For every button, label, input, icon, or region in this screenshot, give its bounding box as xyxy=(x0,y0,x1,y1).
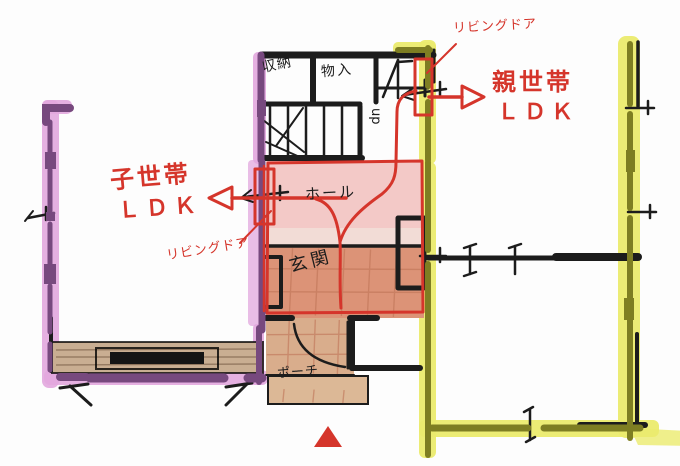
window-symbol-deck-right xyxy=(226,383,252,405)
parent-unit-ldk-label: ＬＤＫ xyxy=(497,102,578,124)
deck-black-bar xyxy=(110,352,204,364)
stairs-up-label: up xyxy=(369,108,382,125)
parent-unit-label: 親世帯 xyxy=(492,70,573,94)
closet-label: 物入 xyxy=(320,63,353,80)
child-unit-label: 子世帯 xyxy=(109,162,192,193)
floor-plan-sketch: 収納 物入 up ホール 玄関 ポーチ リビングドア 親世帯 ＬＤＫ 子世帯 Ｌ… xyxy=(0,0,680,466)
staircase xyxy=(258,106,362,158)
deck-board xyxy=(52,342,263,373)
entrance-direction-marker xyxy=(314,426,342,447)
window-symbol-deck-left xyxy=(60,384,91,405)
hall-label: ホール xyxy=(305,185,357,203)
parent-unit-wall xyxy=(428,244,638,276)
child-unit-ldk-label: ＬＤＫ xyxy=(117,195,202,223)
porch-label: ポーチ xyxy=(277,365,320,381)
